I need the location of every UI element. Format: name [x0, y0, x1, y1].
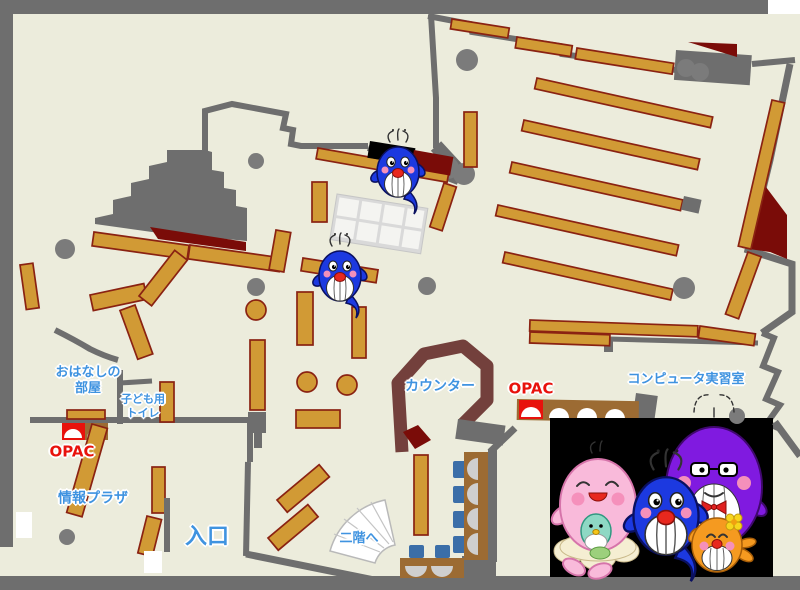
- label-storytime-room-line2: 部屋: [55, 381, 120, 397]
- pillar: [456, 49, 478, 71]
- wall-top-right-end: [752, 60, 795, 64]
- pillar: [729, 408, 745, 424]
- label-storytime-room-line1: おはなしの: [55, 365, 120, 381]
- round-table: [246, 300, 266, 320]
- pillar: [418, 277, 436, 295]
- wall-stub: [254, 433, 262, 448]
- chair: [409, 545, 424, 558]
- label-kids-toilet: 子ども用 トイレ: [121, 392, 165, 420]
- pillar: [691, 63, 709, 81]
- bookshelf: [67, 410, 105, 419]
- doorway: [144, 551, 162, 573]
- pillar: [247, 278, 265, 296]
- label-kids-toilet-line2: トイレ: [121, 406, 165, 420]
- label-opac-left: OPAC: [50, 443, 95, 462]
- pillar: [673, 277, 695, 299]
- label-storytime-room: おはなしの 部屋: [55, 365, 120, 398]
- library-floor-map: おはなしの 部屋 子ども用 トイレ OPAC 情報プラザ 入口 カウンター OP…: [0, 0, 800, 590]
- label-entrance: 入口: [185, 523, 229, 551]
- pillar: [248, 153, 264, 169]
- label-counter: カウンター: [405, 378, 475, 396]
- doorway: [16, 512, 32, 538]
- bookshelf: [414, 455, 428, 535]
- pillar: [55, 239, 75, 259]
- label-opac-right: OPAC: [509, 380, 554, 399]
- round-table: [337, 375, 357, 395]
- label-stairs-up: 二階へ: [339, 531, 378, 547]
- flower-icon: [726, 514, 742, 530]
- page-corner: [768, 0, 800, 14]
- label-info-plaza: 情報プラザ: [58, 490, 128, 508]
- round-table: [297, 372, 317, 392]
- label-kids-toilet-line1: 子ども用: [121, 392, 165, 406]
- label-computer-room: コンピュータ実習室: [627, 372, 744, 388]
- chair: [435, 545, 450, 558]
- pillar: [59, 529, 75, 545]
- outer-wall-left: [0, 0, 13, 547]
- outer-wall-top: [0, 0, 768, 14]
